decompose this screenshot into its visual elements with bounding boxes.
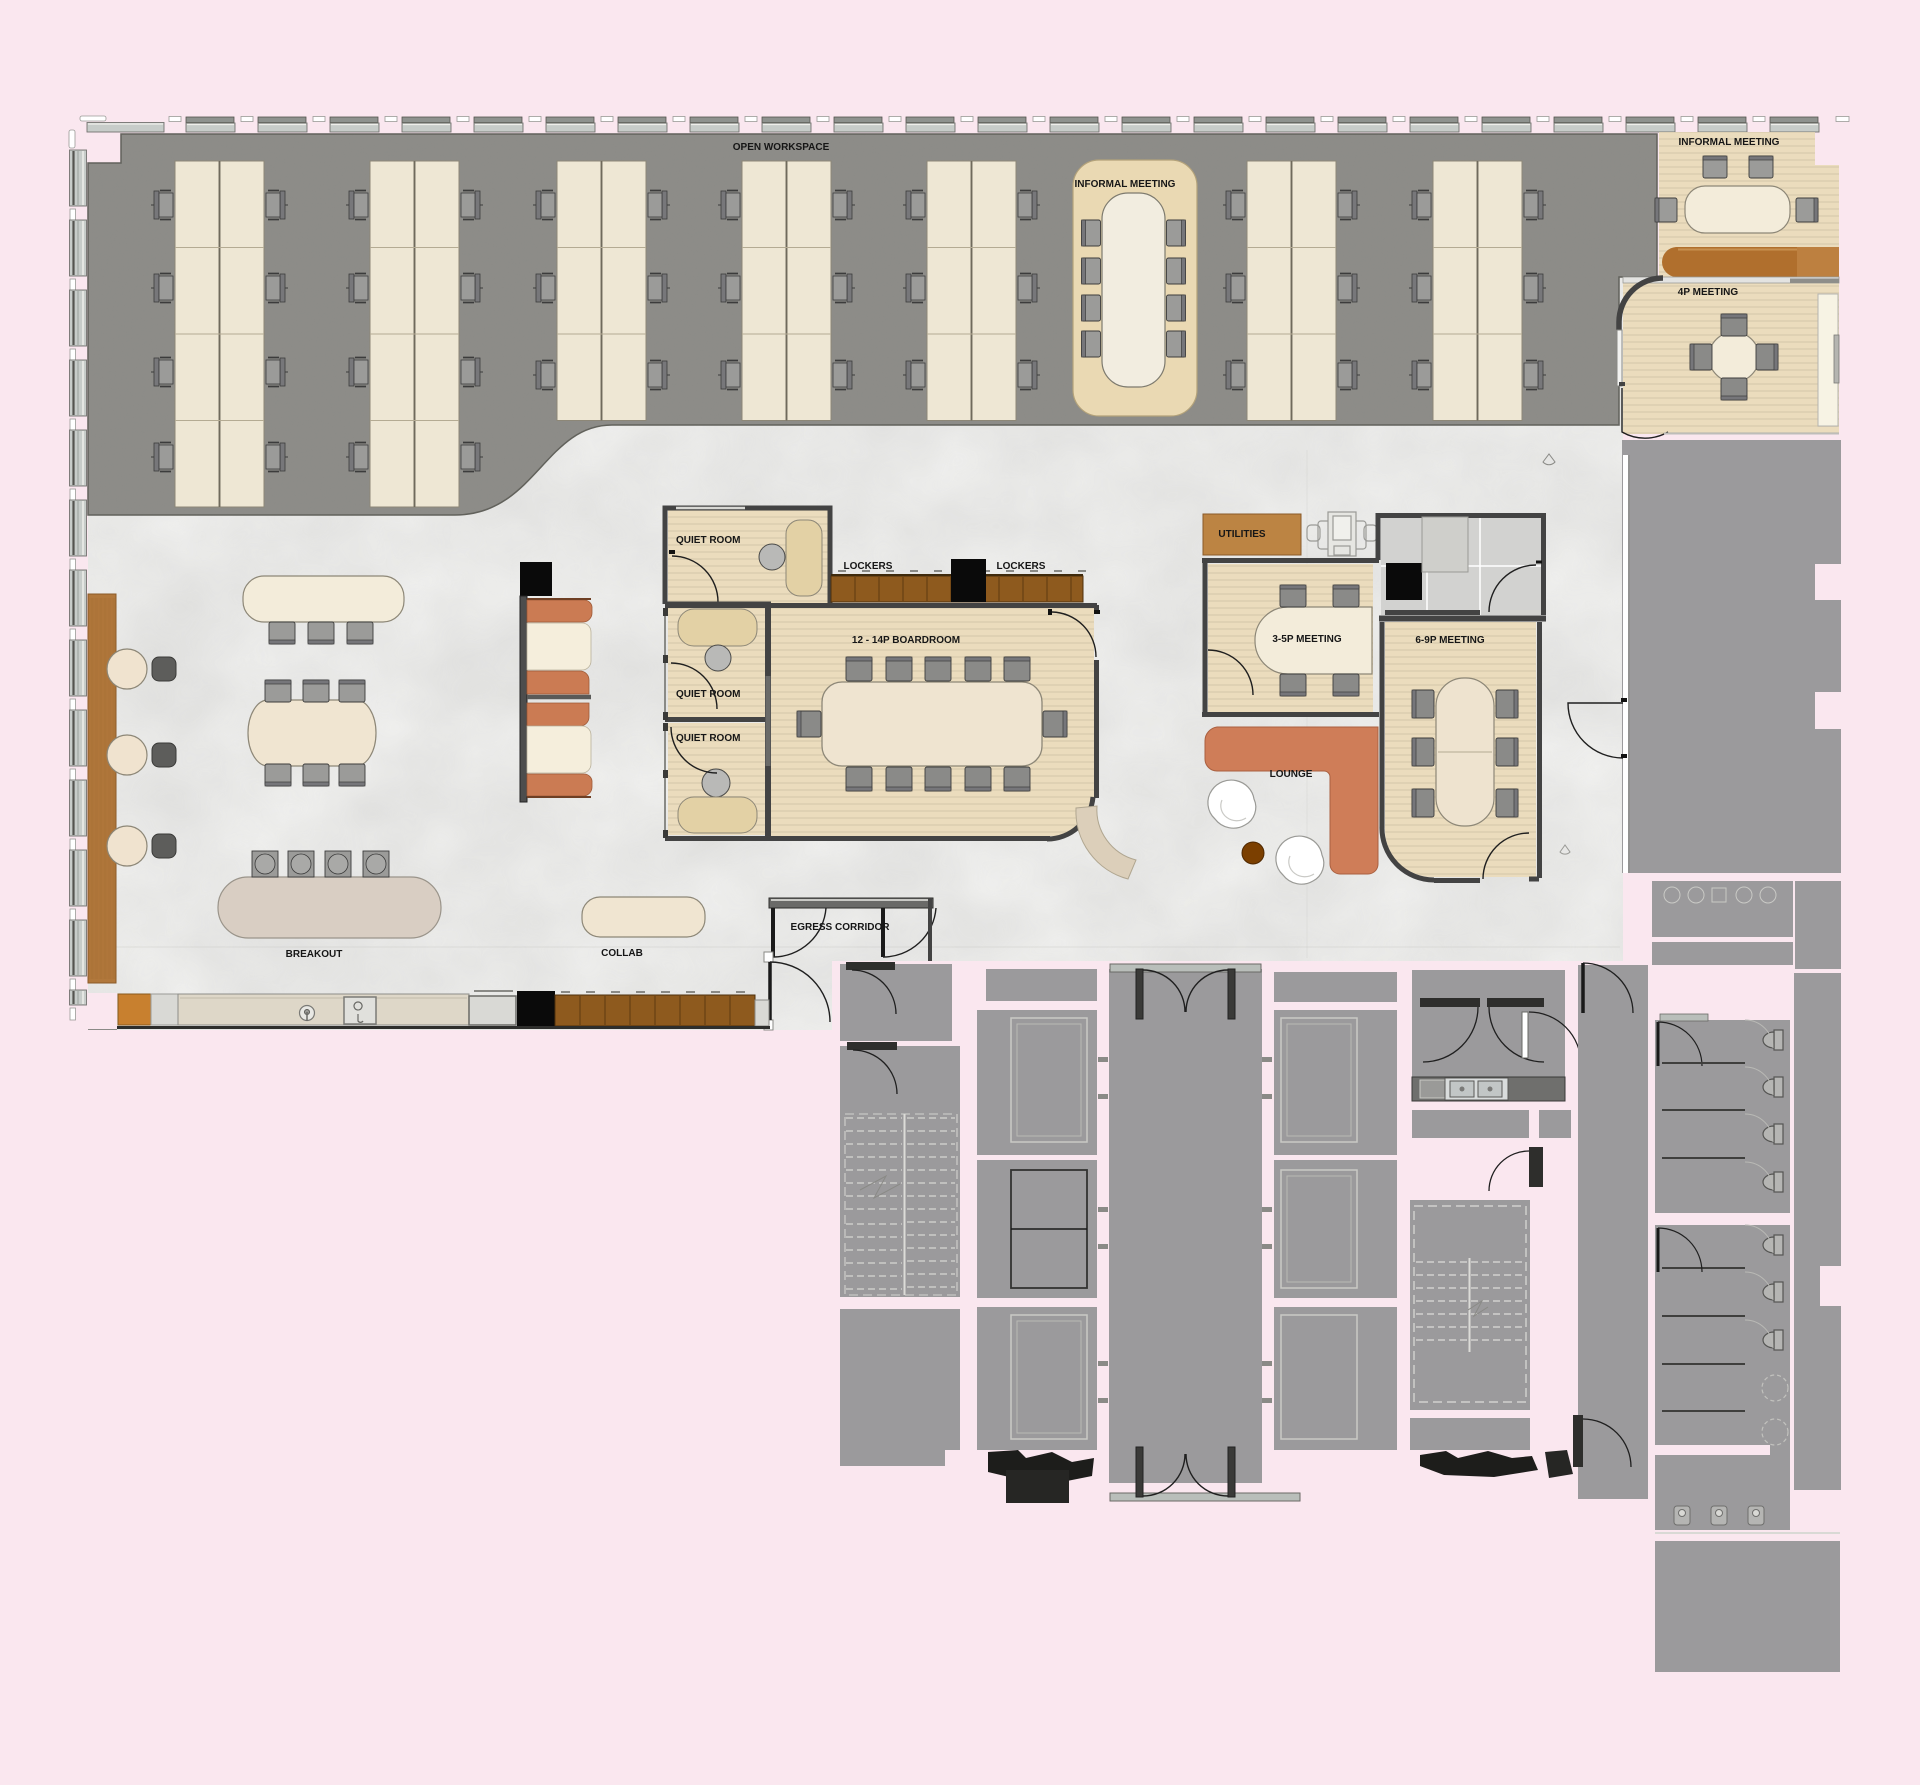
svg-text:UTILITIES: UTILITIES xyxy=(1218,529,1266,540)
svg-text:COLLAB: COLLAB xyxy=(601,948,643,959)
svg-text:EGRESS CORRIDOR: EGRESS CORRIDOR xyxy=(791,922,891,933)
svg-text:INFORMAL MEETING: INFORMAL MEETING xyxy=(1679,137,1780,148)
svg-text:QUIET ROOM: QUIET ROOM xyxy=(676,733,740,744)
svg-text:QUIET ROOM: QUIET ROOM xyxy=(676,689,740,700)
svg-text:3-5P MEETING: 3-5P MEETING xyxy=(1272,634,1341,645)
svg-text:12 - 14P BOARDROOM: 12 - 14P BOARDROOM xyxy=(852,635,960,646)
svg-text:OPEN WORKSPACE: OPEN WORKSPACE xyxy=(733,142,830,153)
svg-text:INFORMAL MEETING: INFORMAL MEETING xyxy=(1075,179,1176,190)
svg-text:LOUNGE: LOUNGE xyxy=(1270,769,1313,780)
svg-text:QUIET ROOM: QUIET ROOM xyxy=(676,535,740,546)
svg-text:6-9P MEETING: 6-9P MEETING xyxy=(1415,635,1484,646)
svg-text:4P MEETING: 4P MEETING xyxy=(1678,287,1739,298)
svg-text:BREAKOUT: BREAKOUT xyxy=(286,949,343,960)
svg-text:LOCKERS: LOCKERS xyxy=(844,561,893,572)
svg-text:LOCKERS: LOCKERS xyxy=(997,561,1046,572)
